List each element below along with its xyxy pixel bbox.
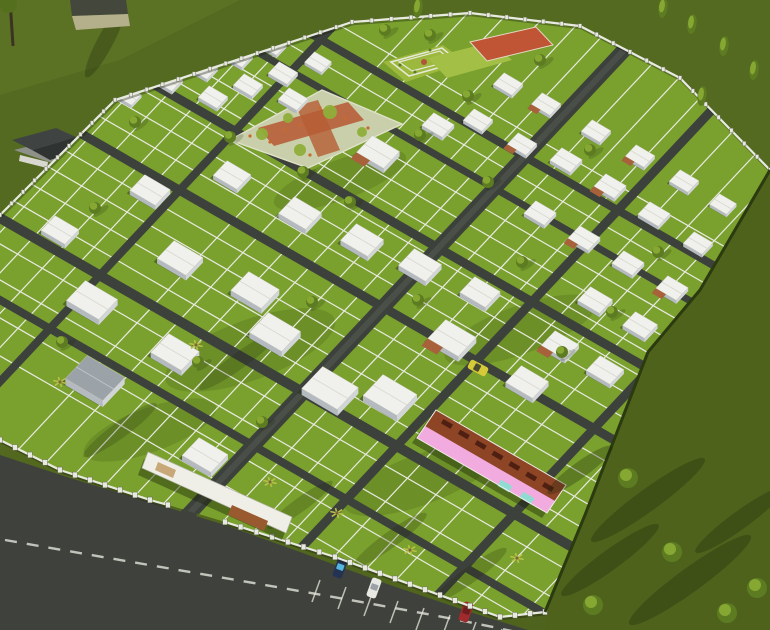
- wall-pillar: [595, 32, 598, 36]
- wall-pillar: [468, 603, 473, 609]
- bush-highlight: [719, 604, 731, 616]
- wall-pillar: [645, 58, 648, 62]
- wall-pillar: [33, 178, 36, 182]
- tree-highlight: [298, 166, 306, 174]
- tree-highlight: [90, 202, 98, 210]
- wall-pillar: [129, 93, 132, 97]
- wall-pillar: [612, 41, 615, 45]
- hedge-shrub: [414, 71, 417, 74]
- wall-pillar: [513, 612, 518, 618]
- wall-pillar: [628, 50, 631, 54]
- wall-pillar: [409, 15, 412, 19]
- wall-pillar: [10, 201, 13, 205]
- park-flower-bed: [268, 140, 271, 143]
- wall-pillar: [578, 24, 581, 28]
- wall-pillar: [43, 460, 48, 466]
- bush-highlight: [620, 469, 632, 481]
- park-lawn-patch: [294, 144, 306, 156]
- tree-highlight: [517, 256, 525, 264]
- tree-highlight: [425, 29, 433, 37]
- wall-pillar: [487, 13, 490, 17]
- palm-trunk: [335, 511, 338, 514]
- wall-pillar: [453, 598, 458, 604]
- wall-pillar: [523, 17, 526, 21]
- palm-trunk: [58, 380, 61, 383]
- wall-pillar: [363, 565, 368, 571]
- wall-pillar: [79, 132, 82, 136]
- wall-pillar: [505, 15, 508, 19]
- wall-pillar: [319, 30, 322, 34]
- wall-pillar: [103, 482, 108, 488]
- wall-pillar: [254, 529, 259, 535]
- park-lawn-patch: [283, 113, 293, 123]
- tree-highlight: [307, 296, 315, 304]
- wall-pillar: [678, 76, 681, 80]
- tree-highlight: [380, 24, 388, 32]
- wall-pillar: [483, 609, 488, 615]
- wall-pillar: [58, 467, 63, 473]
- tree-highlight: [653, 246, 661, 254]
- tree-highlight: [463, 90, 471, 98]
- wall-pillar: [303, 35, 306, 39]
- wall-pillar: [67, 144, 70, 148]
- wall-pillar: [438, 592, 443, 598]
- township-aerial-render: [0, 0, 770, 630]
- wall-pillar: [408, 581, 413, 587]
- tree-highlight: [413, 294, 421, 302]
- park-flower-bed: [343, 116, 346, 119]
- wall-pillar: [287, 41, 290, 45]
- wall-pillar: [378, 570, 383, 576]
- wall-pillar: [755, 155, 758, 159]
- wall-pillar: [192, 72, 195, 76]
- wall-pillar: [113, 98, 116, 102]
- wall-pillar: [301, 544, 306, 550]
- wall-pillar: [560, 22, 563, 26]
- wall-pillar: [102, 109, 105, 113]
- wall-pillar: [662, 67, 665, 71]
- bush-highlight: [585, 596, 597, 608]
- tree-highlight: [415, 129, 423, 137]
- wall-pillar: [730, 128, 733, 132]
- wall-pillar: [468, 11, 471, 15]
- palm-trunk: [268, 480, 271, 483]
- tree-highlight: [345, 196, 353, 204]
- wall-pillar: [224, 61, 227, 65]
- wall-pillar: [133, 492, 138, 498]
- wall-pillar: [286, 539, 291, 545]
- wall-pillar: [148, 497, 153, 503]
- wall-pillar: [271, 46, 274, 50]
- tree-highlight: [57, 336, 65, 344]
- wall-pillar: [118, 487, 123, 493]
- hedge-shrub: [399, 64, 402, 67]
- wall-pillar: [333, 554, 338, 560]
- wall-pillar: [393, 576, 398, 582]
- wall-pillar: [429, 14, 432, 18]
- palm-trunk: [408, 548, 411, 551]
- wall-pillar: [743, 141, 746, 145]
- bush-highlight: [749, 579, 761, 591]
- wall-pillar: [348, 560, 353, 566]
- wall-pillar: [0, 213, 2, 217]
- tree-highlight: [557, 346, 565, 354]
- wall-pillar: [449, 12, 452, 16]
- wall-pillar: [542, 19, 545, 23]
- wall-pillar: [370, 18, 373, 22]
- tree-highlight: [535, 54, 543, 62]
- palm-trunk: [515, 556, 518, 559]
- tree-highlight: [130, 116, 138, 124]
- wall-pillar: [691, 89, 694, 93]
- tree-highlight: [483, 176, 491, 184]
- wall-pillar: [44, 167, 47, 171]
- hedge-shrub: [429, 49, 432, 52]
- wall-pillar: [390, 17, 393, 21]
- wall-pillar: [56, 155, 59, 159]
- park-flower-bed: [298, 123, 301, 126]
- park-lawn-patch: [256, 128, 268, 140]
- township-3d-layout: [0, 0, 770, 630]
- tree-highlight: [257, 416, 265, 424]
- wall-pillar: [238, 524, 243, 530]
- tree-highlight: [607, 306, 615, 314]
- wall-pillar: [161, 82, 164, 86]
- tree-highlight: [585, 144, 593, 152]
- barn-roof: [70, 0, 128, 16]
- tree-highlight: [193, 356, 201, 364]
- park-flower-bed: [283, 128, 286, 131]
- wall-pillar: [350, 20, 353, 24]
- park-flower-bed: [366, 126, 369, 129]
- wall-pillar: [528, 611, 533, 617]
- garden-centerpiece: [421, 59, 427, 65]
- wall-pillar: [145, 87, 148, 91]
- wall-pillar: [717, 115, 720, 119]
- palm-trunk: [194, 343, 197, 346]
- wall-pillar: [240, 56, 243, 60]
- wall-pillar: [223, 519, 228, 525]
- wall-pillar: [177, 77, 180, 81]
- park-lawn-patch: [357, 127, 367, 137]
- wall-pillar: [28, 452, 33, 458]
- wall-pillar: [0, 437, 2, 443]
- wall-pillar: [90, 121, 93, 125]
- wall-pillar: [208, 67, 211, 71]
- wall-pillar: [21, 190, 24, 194]
- park-flower-bed: [248, 134, 251, 137]
- wall-pillar: [166, 502, 171, 508]
- wall-pillar: [498, 614, 503, 620]
- park-flower-bed: [318, 106, 321, 109]
- park-lawn-patch: [323, 105, 337, 119]
- wall-pillar: [335, 25, 338, 29]
- wall-pillar: [88, 477, 93, 483]
- bush-highlight: [664, 543, 676, 555]
- wall-pillar: [256, 51, 259, 55]
- wall-pillar: [13, 445, 18, 451]
- tree-highlight: [225, 131, 233, 139]
- park-flower-bed: [308, 153, 311, 156]
- wall-pillar: [423, 587, 428, 593]
- wall-pillar: [73, 472, 78, 478]
- wall-pillar: [317, 549, 322, 555]
